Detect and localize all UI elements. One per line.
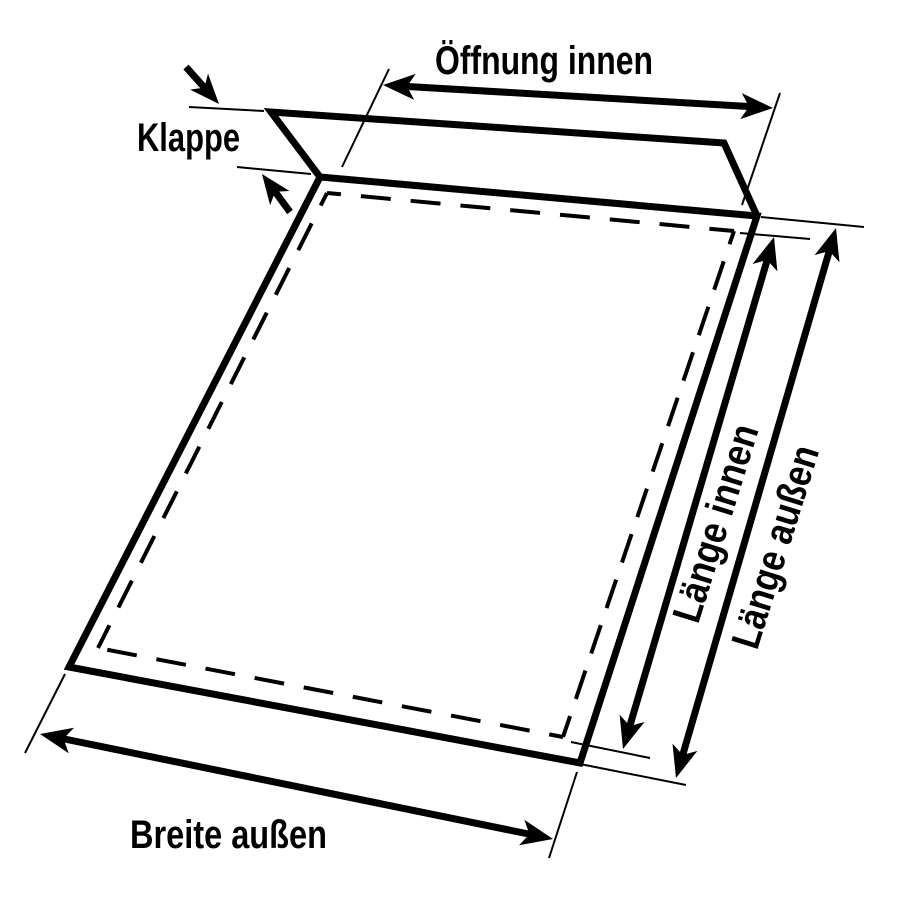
svg-text:Öffnung innen: Öffnung innen [435,38,653,83]
svg-text:Breite außen: Breite außen [130,813,327,857]
svg-text:Klappe: Klappe [137,116,240,160]
